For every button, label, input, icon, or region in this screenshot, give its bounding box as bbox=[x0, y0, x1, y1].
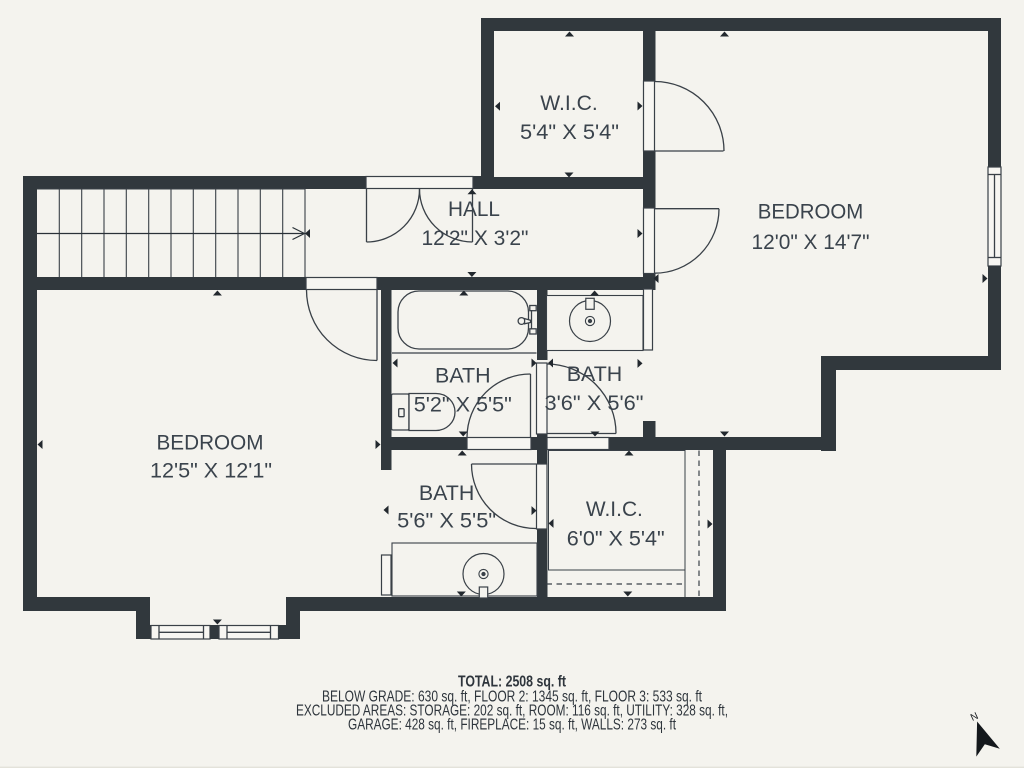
svg-text:W.I.C.: W.I.C. bbox=[540, 90, 598, 115]
svg-text:HALL: HALL bbox=[448, 196, 500, 221]
svg-text:5'4" X 5'4": 5'4" X 5'4" bbox=[520, 119, 619, 144]
svg-text:BATH: BATH bbox=[567, 361, 623, 386]
svg-text:6'0" X 5'4": 6'0" X 5'4" bbox=[567, 526, 665, 551]
svg-text:BEDROOM: BEDROOM bbox=[758, 199, 864, 224]
svg-text:W.I.C.: W.I.C. bbox=[586, 496, 643, 521]
svg-text:5'6" X 5'5": 5'6" X 5'5" bbox=[397, 508, 496, 533]
svg-text:12'0" X 14'7": 12'0" X 14'7" bbox=[752, 229, 870, 254]
svg-text:BEDROOM: BEDROOM bbox=[157, 430, 264, 455]
svg-text:3'6" X 5'6": 3'6" X 5'6" bbox=[545, 390, 644, 415]
svg-text:GARAGE: 428 sq. ft, FIREPLACE:: GARAGE: 428 sq. ft, FIREPLACE: 15 sq. ft… bbox=[348, 716, 677, 733]
svg-text:12'5" X 12'1": 12'5" X 12'1" bbox=[150, 458, 272, 483]
svg-text:BATH: BATH bbox=[435, 362, 491, 387]
svg-text:BATH: BATH bbox=[419, 480, 475, 505]
svg-text:5'2" X 5'5": 5'2" X 5'5" bbox=[414, 392, 512, 417]
svg-text:12'2" X 3'2": 12'2" X 3'2" bbox=[422, 225, 529, 250]
